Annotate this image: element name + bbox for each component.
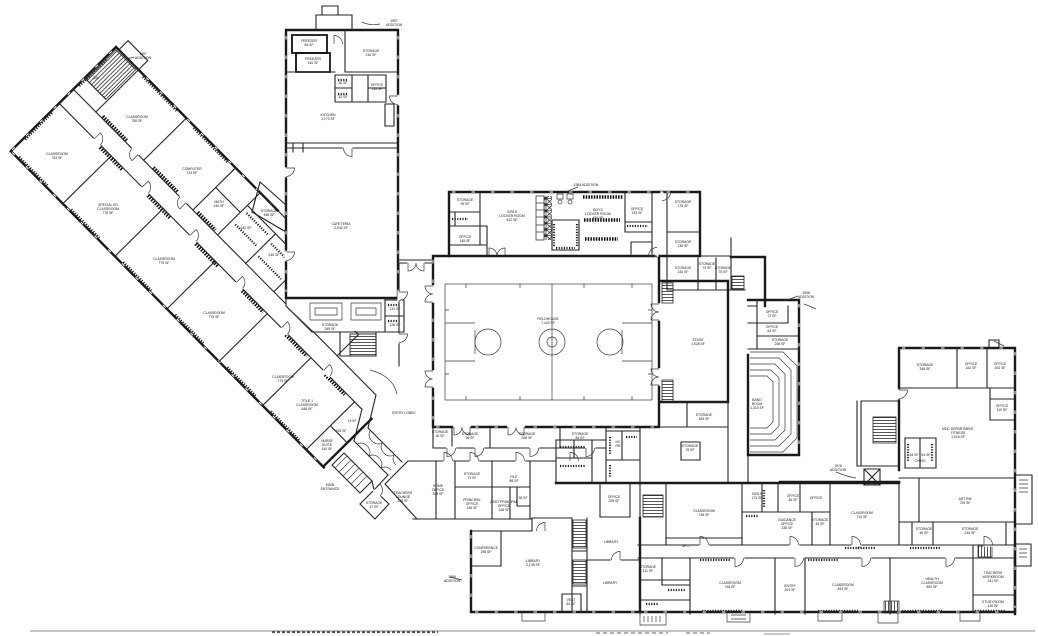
svg-text:136 SF: 136 SF [678,244,689,248]
svg-text:64 SF | 54 SF: 64 SF | 54 SF [910,453,931,457]
svg-text:84 SF: 84 SF [788,498,797,502]
svg-text:26 SF: 26 SF [435,434,444,438]
svg-text:UP—: UP— [856,546,865,550]
svg-text:216 SF: 216 SF [366,53,377,57]
svg-text:2,148 SF: 2,148 SF [526,563,540,567]
svg-text:110 SF: 110 SF [997,408,1008,412]
svg-text:241 SF: 241 SF [988,579,999,583]
svg-text:775 SF: 775 SF [159,261,170,265]
svg-text:64 SF: 64 SF [566,602,575,606]
svg-text:400 SF: 400 SF [593,216,604,220]
svg-text:240 SF: 240 SF [214,204,225,208]
svg-text:133 SF: 133 SF [632,211,643,215]
svg-text:246 SF: 246 SF [269,253,280,257]
svg-text:848 SF: 848 SF [302,407,313,411]
svg-text:ADDITION: ADDITION [386,23,403,27]
svg-text:84 SF: 84 SF [575,436,584,440]
svg-text:248 SF: 248 SF [499,508,510,512]
svg-text:84 SF: 84 SF [304,43,313,47]
svg-text:126 SF: 126 SF [390,323,401,327]
svg-text:30 SF: 30 SF [338,81,347,85]
svg-text:748 SF: 748 SF [725,585,736,589]
svg-text:1,016 SF: 1,016 SF [951,435,965,439]
svg-text:LIBRARY: LIBRARY [603,581,618,585]
svg-text:238 SF: 238 SF [782,526,793,530]
svg-text:152 SF: 152 SF [966,366,977,370]
svg-text:714 SF: 714 SF [857,515,868,519]
svg-text:ADDITION: ADDITION [135,56,152,60]
svg-text:105 SF: 105 SF [336,429,347,433]
svg-text:349 SF: 349 SF [325,327,336,331]
svg-text:OFFICE: OFFICE [810,496,823,500]
svg-text:131 SF: 131 SF [390,307,401,311]
svg-text:76 SF: 76 SF [685,448,694,452]
svg-text:208 SF: 208 SF [522,436,533,440]
svg-text:175 SF: 175 SF [678,204,689,208]
svg-text:28 SF: 28 SF [518,496,527,500]
svg-text:46 SF: 46 SF [919,531,928,535]
svg-text:UP—: UP— [682,544,691,548]
svg-text:1,170 SF: 1,170 SF [321,117,335,121]
svg-text:145 SF: 145 SF [467,506,478,510]
svg-text:88 SF: 88 SF [509,479,518,483]
svg-text:763 SF: 763 SF [52,156,63,160]
svg-text:612 SF: 612 SF [507,218,518,222]
svg-text:750 SF: 750 SF [132,119,143,123]
svg-text:76 SF: 76 SF [718,270,727,274]
svg-text:72 SF: 72 SF [767,314,776,318]
svg-text:ADDITION: ADDITION [444,579,461,583]
svg-text:74 SF: 74 SF [347,419,356,423]
svg-text:778 SF: 778 SF [103,211,114,215]
svg-text:144 SF: 144 SF [678,270,689,274]
svg-text:458 SF: 458 SF [264,213,275,217]
svg-text:209 SF: 209 SF [433,492,444,496]
svg-text:2,042 SF: 2,042 SF [334,226,348,230]
svg-text:140 SF: 140 SF [322,447,333,451]
svg-text:204 SF: 204 SF [995,366,1006,370]
svg-text:74 SF: 74 SF [702,266,711,270]
svg-text:96 SF: 96 SF [465,436,474,440]
svg-text:246 SF: 246 SF [965,531,976,535]
svg-text:7,442 SF: 7,442 SF [541,321,555,325]
svg-text:140 SF: 140 SF [988,604,999,608]
svg-text:206 SF: 206 SF [775,342,786,346]
svg-text:743 SF: 743 SF [187,171,198,175]
svg-text:228 SF: 228 SF [609,499,620,503]
svg-text:74 SF: 74 SF [467,476,476,480]
svg-text:775 SF: 775 SF [209,315,220,319]
svg-text:729 SF: 729 SF [960,501,971,505]
svg-text:135 SF: 135 SF [372,87,383,91]
svg-text:1,310 SF: 1,310 SF [750,406,764,410]
svg-text:1984 ADDITION: 1984 ADDITION [574,183,599,187]
svg-text:173 SF: 173 SF [752,496,763,500]
svg-text:198 SF: 198 SF [481,550,492,554]
svg-text:ENTRANCE: ENTRANCE [321,487,340,491]
svg-text:775 SF: 775 SF [278,379,289,383]
svg-text:ENTRY LOBBY: ENTRY LOBBY [392,411,416,415]
svg-text:DN: DN [94,76,99,80]
svg-text:265 SF: 265 SF [398,499,409,503]
svg-text:63 SF: 63 SF [767,329,776,333]
svg-text:892 SF: 892 SF [927,585,938,589]
svg-text:32 SF: 32 SF [338,95,347,99]
svg-text:203 SF: 203 SF [785,588,796,592]
svg-text:148 SF: 148 SF [460,239,471,243]
svg-text:111 SF: 111 SF [643,569,653,573]
svg-text:RR: RR [616,444,621,448]
svg-text:140 SF: 140 SF [308,61,319,65]
svg-text:842 SF: 842 SF [838,587,849,591]
svg-text:240 SF: 240 SF [241,226,252,230]
svg-text:45 SF: 45 SF [815,522,824,526]
svg-text:346 SF: 346 SF [920,367,931,371]
svg-text:ADDITION: ADDITION [830,468,847,472]
svg-text:LIBRARY: LIBRARY [604,540,619,544]
svg-text:169 SF: 169 SF [699,417,710,421]
svg-text:CH/HO: CH/HO [915,459,926,463]
svg-text:47 SF: 47 SF [369,505,378,509]
svg-text:1,528 SF: 1,528 SF [691,342,705,346]
svg-text:ADDITION: ADDITION [798,295,815,299]
svg-text:748 SF: 748 SF [699,513,710,517]
svg-text:99 SF: 99 SF [460,202,469,206]
